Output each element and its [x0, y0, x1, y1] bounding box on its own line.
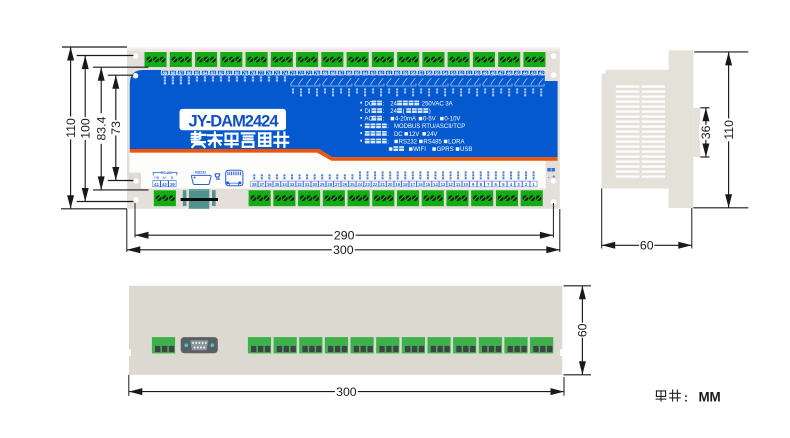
- svg-text:46: 46: [507, 70, 512, 75]
- svg-text:62: 62: [379, 70, 384, 75]
- svg-text:40: 40: [162, 182, 167, 187]
- svg-text:60: 60: [640, 239, 654, 253]
- svg-text:55: 55: [435, 70, 440, 75]
- svg-text:60: 60: [395, 70, 400, 75]
- svg-text:64: 64: [363, 70, 368, 75]
- svg-text:12: 12: [448, 182, 453, 187]
- svg-text:24: 24: [390, 101, 397, 107]
- svg-text:36: 36: [699, 125, 713, 139]
- svg-text:39: 39: [170, 182, 175, 187]
- svg-text:RS485: RS485: [161, 171, 172, 175]
- svg-text:54: 54: [443, 70, 448, 75]
- svg-text:0-10V: 0-10V: [444, 117, 460, 123]
- svg-text:13: 13: [441, 182, 446, 187]
- svg-text:87: 87: [179, 70, 184, 75]
- svg-text:56: 56: [427, 70, 432, 75]
- svg-text:RS232: RS232: [399, 139, 418, 145]
- svg-text:28: 28: [327, 182, 332, 187]
- svg-text:): ): [429, 109, 431, 115]
- svg-text:110: 110: [64, 118, 78, 138]
- svg-text:24: 24: [358, 182, 363, 187]
- svg-text:73: 73: [109, 121, 123, 135]
- svg-text:16: 16: [418, 182, 423, 187]
- svg-text:57: 57: [419, 70, 424, 75]
- svg-text:PB: PB: [154, 176, 159, 180]
- svg-text:48: 48: [491, 70, 496, 75]
- svg-text:50: 50: [475, 70, 480, 75]
- svg-text:47: 47: [499, 70, 504, 75]
- svg-text:38: 38: [252, 182, 257, 187]
- svg-text:31: 31: [305, 182, 310, 187]
- svg-text:71: 71: [307, 70, 312, 75]
- svg-text:250VAC 3A: 250VAC 3A: [422, 101, 453, 107]
- svg-text:65: 65: [355, 70, 360, 75]
- svg-text:25: 25: [350, 182, 355, 187]
- svg-text:300: 300: [333, 243, 354, 257]
- svg-text:24V: 24V: [427, 132, 438, 138]
- svg-text:LORA: LORA: [448, 139, 464, 145]
- svg-text:4-20mA: 4-20mA: [395, 117, 416, 123]
- svg-text:74: 74: [283, 70, 288, 75]
- svg-text:81: 81: [227, 70, 232, 75]
- svg-text:34: 34: [282, 182, 287, 187]
- svg-text:60: 60: [576, 323, 590, 337]
- svg-text:85: 85: [195, 70, 200, 75]
- svg-text:59: 59: [403, 70, 408, 75]
- svg-text:30: 30: [312, 182, 317, 187]
- svg-text:45: 45: [515, 70, 520, 75]
- svg-text:75: 75: [275, 70, 280, 75]
- svg-text:53: 53: [451, 70, 456, 75]
- svg-text:61: 61: [387, 70, 392, 75]
- svg-text:300: 300: [336, 385, 357, 399]
- svg-text:70: 70: [315, 70, 320, 75]
- svg-text:42: 42: [539, 70, 544, 75]
- svg-text:51: 51: [467, 70, 472, 75]
- svg-text:17: 17: [410, 182, 415, 187]
- svg-text:0-5V: 0-5V: [423, 117, 436, 123]
- svg-text:RS485: RS485: [423, 139, 442, 145]
- svg-text:27: 27: [335, 182, 340, 187]
- svg-text:DC: DC: [394, 132, 403, 138]
- svg-text:83: 83: [211, 70, 216, 75]
- svg-text:11: 11: [456, 182, 461, 187]
- svg-text:10: 10: [463, 182, 468, 187]
- svg-text:DI: DI: [365, 109, 371, 115]
- svg-text:67: 67: [339, 70, 344, 75]
- svg-text:100: 100: [79, 118, 93, 139]
- svg-text:32: 32: [297, 182, 302, 187]
- svg-text:73: 73: [291, 70, 296, 75]
- svg-text:23: 23: [365, 182, 370, 187]
- svg-text:MM: MM: [699, 389, 721, 404]
- svg-text:MODBUS RTU/ASCII/TCP: MODBUS RTU/ASCII/TCP: [394, 124, 465, 130]
- svg-text:110: 110: [722, 120, 736, 140]
- svg-text:26: 26: [343, 182, 348, 187]
- svg-text::: :: [684, 390, 688, 404]
- svg-text:33: 33: [290, 182, 295, 187]
- svg-text:A+: A+: [162, 176, 166, 180]
- svg-text:24: 24: [390, 109, 397, 115]
- svg-text:GPRS: GPRS: [437, 147, 454, 153]
- svg-text:68: 68: [331, 70, 336, 75]
- svg-text:290: 290: [334, 229, 355, 243]
- svg-text:77: 77: [259, 70, 264, 75]
- svg-text:44: 44: [523, 70, 528, 75]
- svg-text:19: 19: [395, 182, 400, 187]
- svg-text:49: 49: [483, 70, 488, 75]
- svg-text:84: 84: [203, 70, 208, 75]
- svg-text:52: 52: [459, 70, 464, 75]
- svg-text:36: 36: [267, 182, 272, 187]
- svg-text:35: 35: [275, 182, 280, 187]
- svg-text:88: 88: [171, 70, 176, 75]
- svg-text:29: 29: [320, 182, 325, 187]
- svg-text:12V: 12V: [409, 132, 420, 138]
- svg-text:14: 14: [433, 182, 438, 187]
- svg-text:80: 80: [235, 70, 240, 75]
- svg-text:83.4: 83.4: [95, 116, 109, 140]
- svg-text:82: 82: [219, 70, 224, 75]
- svg-text:79: 79: [243, 70, 248, 75]
- svg-text:20: 20: [388, 182, 393, 187]
- svg-text:72: 72: [299, 70, 304, 75]
- svg-text:66: 66: [347, 70, 352, 75]
- svg-text:89: 89: [163, 70, 168, 75]
- svg-text:43: 43: [531, 70, 536, 75]
- svg-text:USB: USB: [460, 147, 472, 153]
- svg-text:22: 22: [373, 182, 378, 187]
- svg-text:21: 21: [380, 182, 385, 187]
- svg-text:15: 15: [426, 182, 431, 187]
- svg-text:18: 18: [403, 182, 408, 187]
- svg-text:37: 37: [259, 182, 264, 187]
- svg-text:63: 63: [371, 70, 376, 75]
- svg-text:78: 78: [251, 70, 256, 75]
- svg-text:WIFI: WIFI: [413, 147, 426, 153]
- svg-text:58: 58: [411, 70, 416, 75]
- svg-text:86: 86: [187, 70, 192, 75]
- svg-text:JY-DAM2424: JY-DAM2424: [188, 113, 279, 131]
- svg-text:41: 41: [154, 182, 159, 187]
- svg-text:(: (: [403, 109, 405, 115]
- svg-text:76: 76: [267, 70, 272, 75]
- svg-text:RS232: RS232: [195, 171, 206, 175]
- svg-text:69: 69: [323, 70, 328, 75]
